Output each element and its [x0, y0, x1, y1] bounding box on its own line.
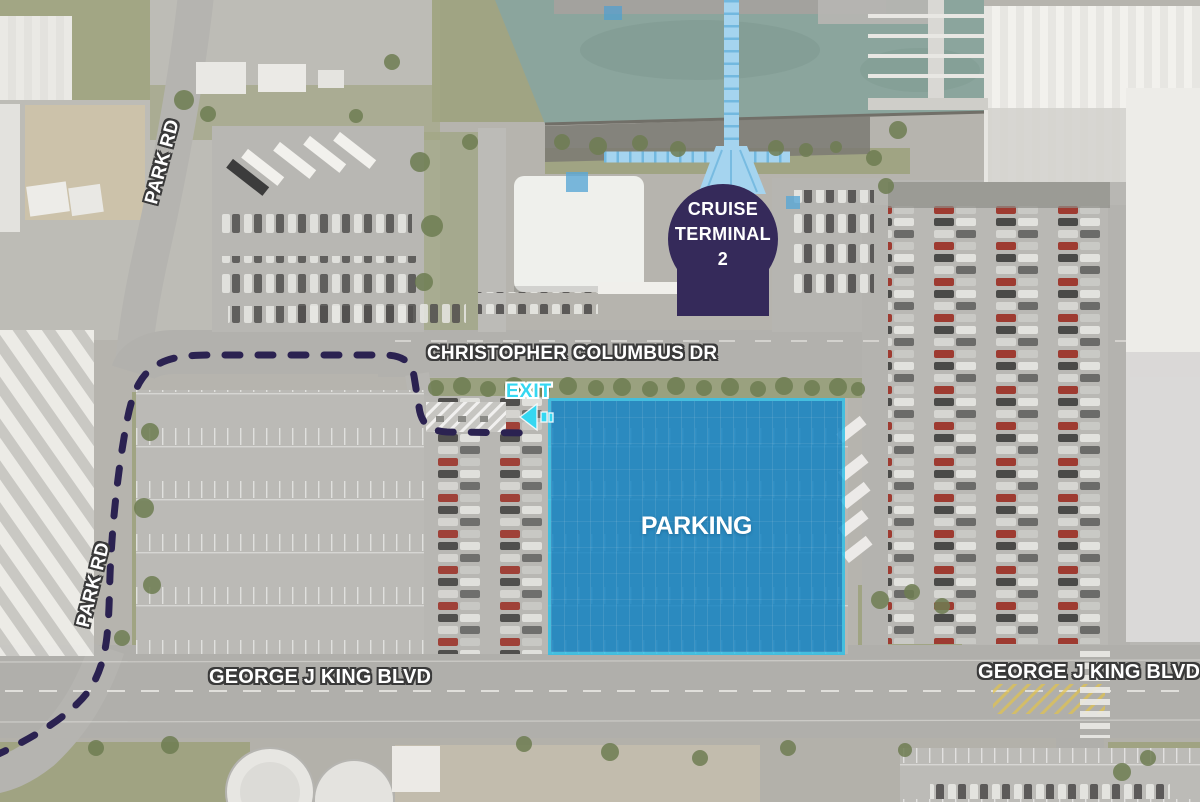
badge-line-3: 2 — [662, 247, 784, 272]
dashed-route-path — [0, 355, 528, 757]
badge-line-2: TERMINAL — [662, 222, 784, 247]
terminal-parking-map: PARKING CHRISTOPHER COLUMBUS DR GEORGE J… — [0, 0, 1200, 802]
cruise-terminal-badge-text: CRUISE TERMINAL 2 — [662, 197, 784, 272]
street-label-george-j-king-blvd-east: GEORGE J KING BLVD — [978, 661, 1200, 684]
street-label-george-j-king-blvd-west: GEORGE J KING BLVD — [209, 666, 431, 689]
exit-label: EXIT — [506, 381, 552, 403]
exit-arrow-icon — [520, 404, 553, 430]
badge-line-1: CRUISE — [662, 197, 784, 222]
street-label-christopher-columbus-dr: CHRISTOPHER COLUMBUS DR — [427, 343, 717, 365]
